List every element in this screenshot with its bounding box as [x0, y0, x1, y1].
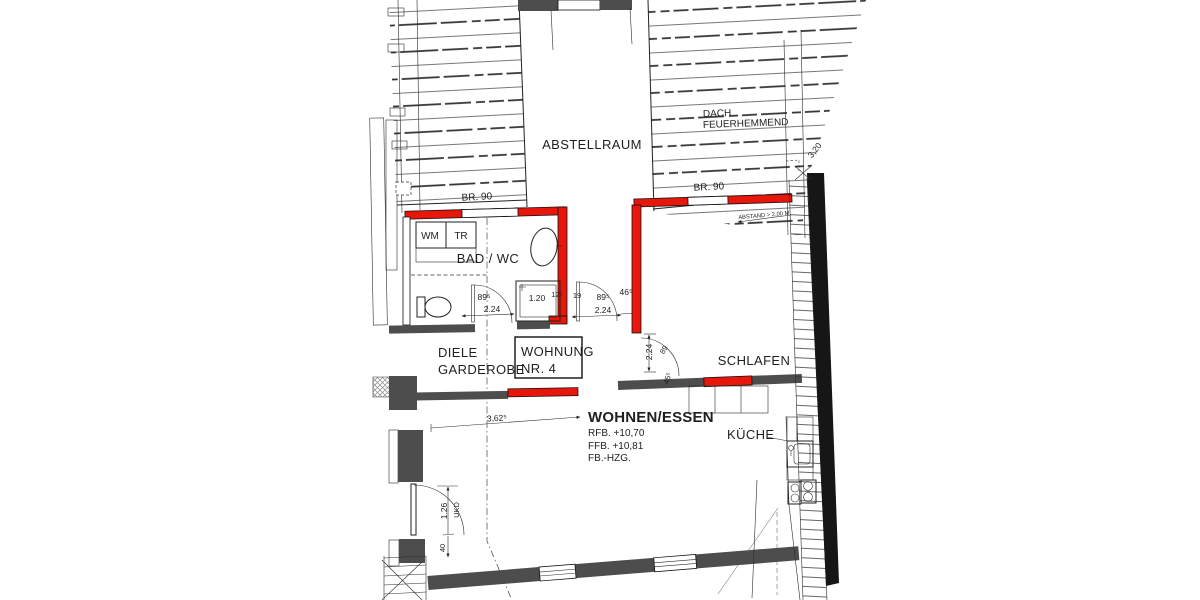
level-ffb: FFB. +10,81: [588, 441, 644, 452]
appliance-tr: TR: [454, 231, 467, 242]
floor-plan-page: ABSTELLRAUM DACH FEUERHEMMEND BR. 90 BR.…: [0, 0, 1200, 600]
room-label-schlafen: SCHLAFEN: [718, 353, 791, 368]
hall-long-wall: [415, 388, 578, 401]
unit-label-line2: NR. 4: [521, 361, 556, 376]
dim-bad-door-width: 89⁵: [478, 292, 491, 302]
dim-entry-door: 1.26: [439, 502, 449, 519]
dim-wall-19: 19: [573, 291, 581, 300]
roof-hatch-left: [389, 0, 527, 213]
note-br90-right: BR. 90: [693, 181, 725, 194]
level-rfb: RFB. +10,70: [588, 428, 645, 439]
appliance-wm: WM: [421, 231, 439, 242]
washbasin: [528, 226, 562, 268]
note-br90-left: BR. 90: [461, 191, 493, 204]
dim-hall-door-width: 89⁵: [597, 292, 610, 302]
room-label-kueche: KÜCHE: [727, 427, 775, 442]
projection-lines: [718, 480, 778, 598]
dim-hall-door-swing: 2.24: [595, 305, 612, 315]
room-label-garderobe: GARDEROBE: [438, 362, 525, 377]
level-fb-hzg: FB.-HZG.: [588, 453, 631, 464]
room-label-bad-wc: BAD / WC: [457, 251, 519, 266]
dim-shower: 1.20: [529, 293, 546, 303]
abstellraum-walls: [518, 0, 654, 211]
dim-schlafen-door-width: 89: [658, 344, 670, 356]
unit-label-line1: WOHNUNG: [521, 344, 594, 359]
room-label-diele: DIELE: [438, 345, 478, 360]
construction-line-dashed: [487, 218, 511, 598]
dim-living-width: 3,62⁵: [487, 412, 508, 423]
room-label-wohnen-essen: WOHNEN/ESSEN: [588, 409, 714, 426]
toilet: [417, 297, 451, 317]
room-label-abstellraum: ABSTELLRAUM: [542, 137, 642, 152]
dim-schlafen-door-swing: 2.24: [644, 343, 654, 360]
dim-bad-door-swing: 2.24: [484, 304, 501, 314]
floor-plan-svg: ABSTELLRAUM DACH FEUERHEMMEND BR. 90 BR.…: [0, 0, 1200, 600]
dim-wall-12: 12⁵: [551, 290, 562, 299]
bottom-wall: [427, 546, 799, 590]
dim-entry-ukd: UKD: [452, 502, 461, 518]
dim-entry-40: 40: [438, 544, 447, 552]
dim-niche-46: 46⁵: [620, 287, 633, 297]
